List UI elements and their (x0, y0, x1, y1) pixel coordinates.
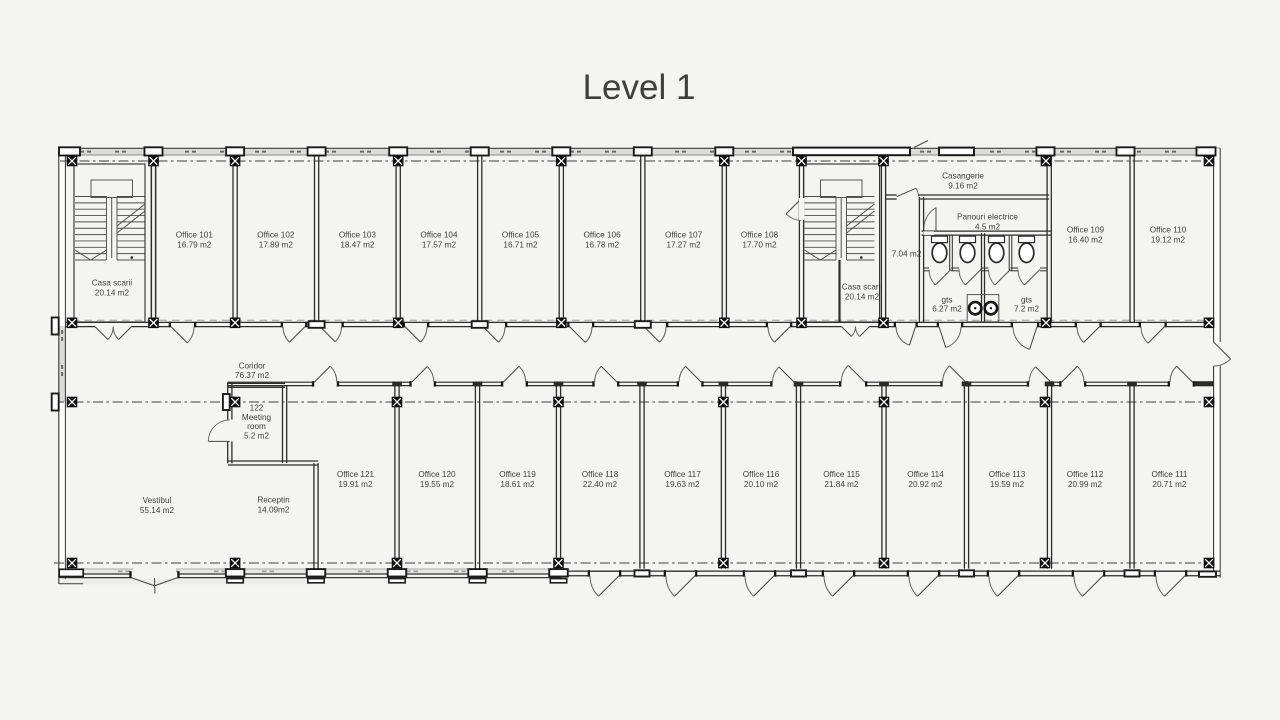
svg-text:17.70 m2: 17.70 m2 (742, 240, 777, 249)
svg-text:Receptin: Receptin (257, 496, 290, 505)
svg-text:Office 106: Office 106 (583, 231, 621, 240)
svg-text:17.27 m2: 17.27 m2 (666, 240, 701, 249)
svg-text:Office 120: Office 120 (418, 470, 456, 479)
svg-text:14.09m2: 14.09m2 (258, 505, 290, 514)
svg-text:20.99 m2: 20.99 m2 (1068, 480, 1103, 489)
svg-text:Casa scarii: Casa scarii (92, 279, 133, 288)
svg-text:gts: gts (1021, 295, 1032, 304)
svg-text:20.92 m2: 20.92 m2 (908, 480, 943, 489)
svg-text:5.2 m2: 5.2 m2 (244, 432, 269, 441)
svg-text:16.40 m2: 16.40 m2 (1068, 235, 1103, 244)
svg-text:55.14 m2: 55.14 m2 (140, 506, 175, 515)
svg-text:Meeting: Meeting (242, 413, 272, 422)
svg-text:Office 121: Office 121 (337, 470, 375, 479)
svg-text:Office 119: Office 119 (499, 470, 536, 479)
svg-text:Office 103: Office 103 (339, 231, 377, 240)
svg-text:Coridor: Coridor (239, 362, 266, 371)
svg-text:20.10 m2: 20.10 m2 (744, 480, 779, 489)
svg-text:20.14 m2: 20.14 m2 (95, 288, 130, 297)
svg-text:6.27 m2: 6.27 m2 (932, 305, 962, 314)
svg-text:4.5 m2: 4.5 m2 (975, 222, 1000, 231)
svg-text:gts: gts (942, 295, 953, 304)
svg-text:Office 118: Office 118 (582, 470, 619, 479)
svg-text:Office 107: Office 107 (665, 231, 703, 240)
svg-text:Office 117: Office 117 (664, 470, 701, 479)
svg-text:Level 1: Level 1 (583, 68, 696, 107)
svg-text:Office 116: Office 116 (743, 470, 780, 479)
svg-text:19.59 m2: 19.59 m2 (990, 480, 1025, 489)
svg-text:7.04 m2: 7.04 m2 (892, 249, 922, 258)
svg-text:Office 108: Office 108 (741, 231, 779, 240)
svg-text:Office 105: Office 105 (502, 231, 540, 240)
svg-text:Office 115: Office 115 (823, 470, 860, 479)
svg-text:Office 113: Office 113 (989, 470, 1026, 479)
svg-text:Office 104: Office 104 (420, 231, 458, 240)
svg-text:Vestibul: Vestibul (143, 496, 172, 505)
svg-text:21.84 m2: 21.84 m2 (824, 480, 859, 489)
svg-text:16.71 m2: 16.71 m2 (503, 240, 538, 249)
svg-text:22.40 m2: 22.40 m2 (583, 480, 618, 489)
svg-text:Office 109: Office 109 (1067, 226, 1105, 235)
svg-text:16.78 m2: 16.78 m2 (585, 240, 620, 249)
svg-text:20.14 m2: 20.14 m2 (845, 292, 880, 301)
svg-text:Office 111: Office 111 (1152, 470, 1188, 479)
svg-text:Panouri electrice: Panouri electrice (957, 213, 1018, 222)
svg-text:Office 110: Office 110 (1150, 226, 1187, 235)
svg-text:17.89 m2: 17.89 m2 (259, 240, 294, 249)
svg-text:7.2 m2: 7.2 m2 (1014, 305, 1039, 314)
svg-text:19.91 m2: 19.91 m2 (338, 480, 373, 489)
svg-text:Office 114: Office 114 (907, 470, 944, 479)
svg-text:19.12 m2: 19.12 m2 (1151, 235, 1186, 244)
svg-text:Office 101: Office 101 (176, 231, 214, 240)
svg-text:room: room (247, 422, 266, 431)
svg-text:19.63 m2: 19.63 m2 (665, 480, 700, 489)
svg-text:19.55 m2: 19.55 m2 (420, 480, 455, 489)
svg-text:18.47 m2: 18.47 m2 (340, 240, 375, 249)
svg-text:Office 102: Office 102 (257, 231, 295, 240)
svg-text:18.61 m2: 18.61 m2 (500, 480, 535, 489)
svg-text:16.79 m2: 16.79 m2 (177, 240, 212, 249)
svg-text:122: 122 (250, 403, 264, 412)
svg-text:Casangerie: Casangerie (942, 172, 984, 181)
svg-text:9.16 m2: 9.16 m2 (948, 181, 978, 190)
svg-text:20.71 m2: 20.71 m2 (1152, 480, 1187, 489)
svg-text:76.37 m2: 76.37 m2 (235, 371, 270, 380)
svg-text:Office 112: Office 112 (1067, 470, 1104, 479)
svg-text:Casa scarii: Casa scarii (842, 283, 883, 292)
svg-text:17.57 m2: 17.57 m2 (422, 240, 457, 249)
